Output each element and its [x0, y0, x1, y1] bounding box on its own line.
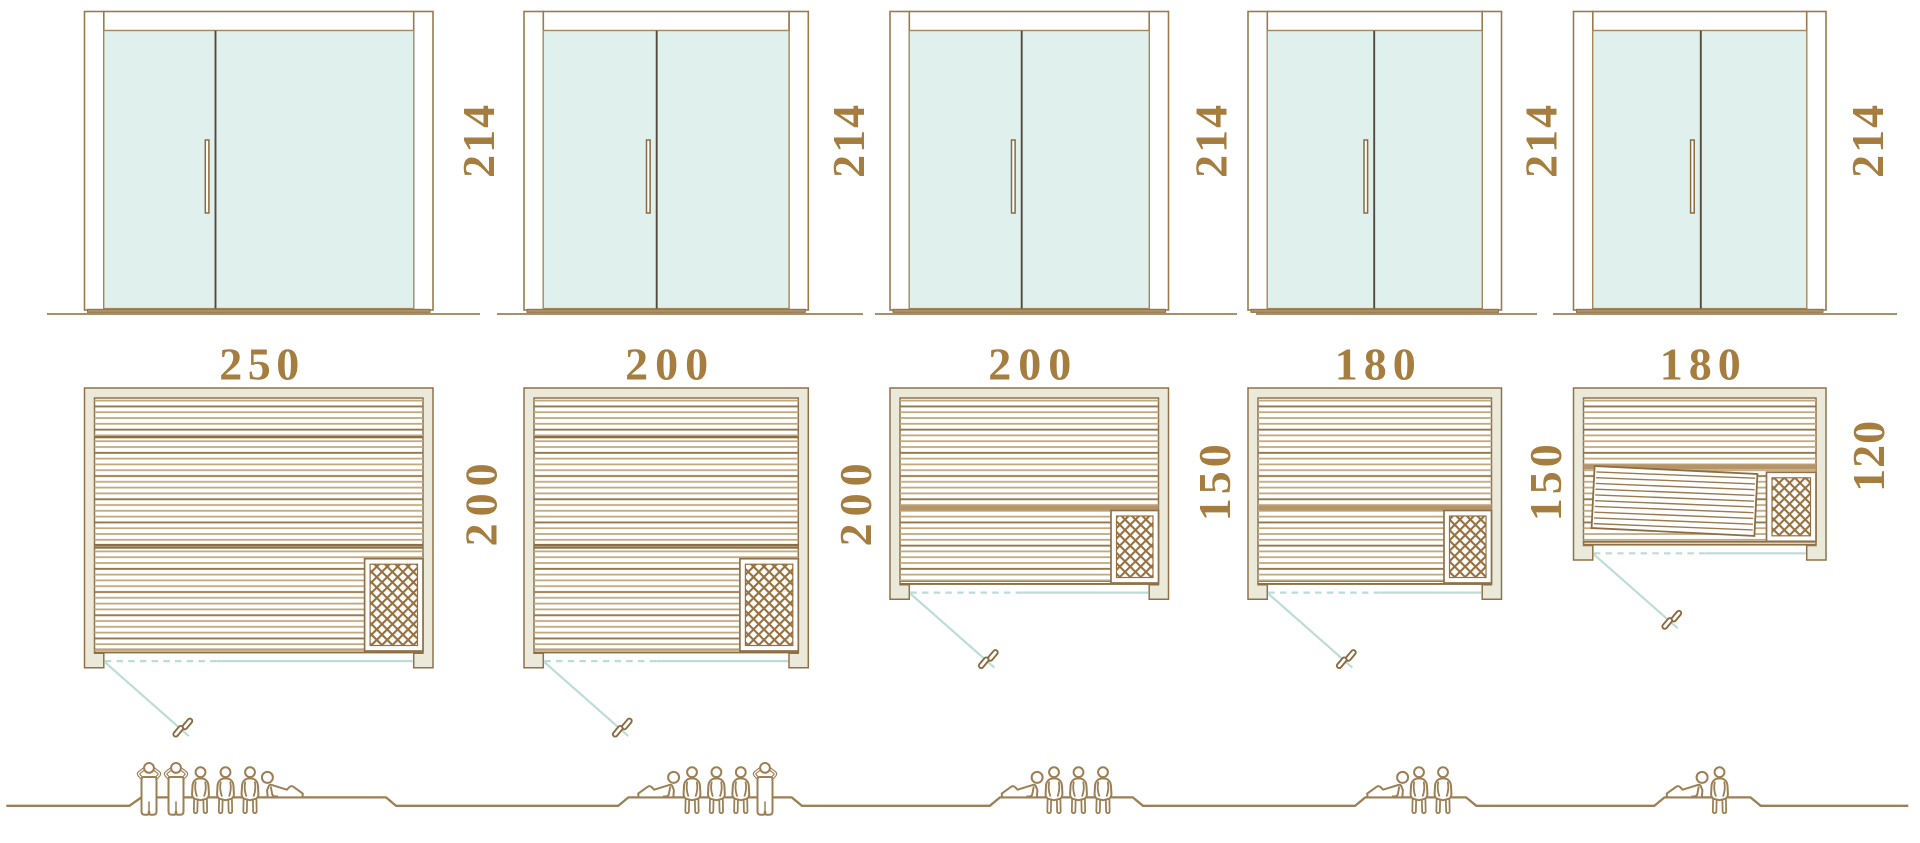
svg-text:214: 214: [1186, 103, 1237, 178]
svg-text:200: 200: [625, 339, 715, 390]
svg-text:214: 214: [823, 103, 874, 178]
svg-text:250: 250: [219, 339, 305, 390]
svg-text:150: 150: [1189, 440, 1240, 521]
svg-text:200: 200: [830, 456, 881, 546]
svg-text:180: 180: [1335, 339, 1422, 390]
svg-text:180: 180: [1660, 339, 1747, 390]
svg-text:214: 214: [1516, 103, 1567, 178]
svg-text:200: 200: [988, 339, 1078, 390]
svg-text:200: 200: [455, 456, 506, 546]
svg-text:150: 150: [1520, 440, 1571, 521]
svg-text:214: 214: [1842, 103, 1893, 178]
svg-text:214: 214: [453, 103, 504, 178]
svg-text:120: 120: [1843, 420, 1894, 492]
